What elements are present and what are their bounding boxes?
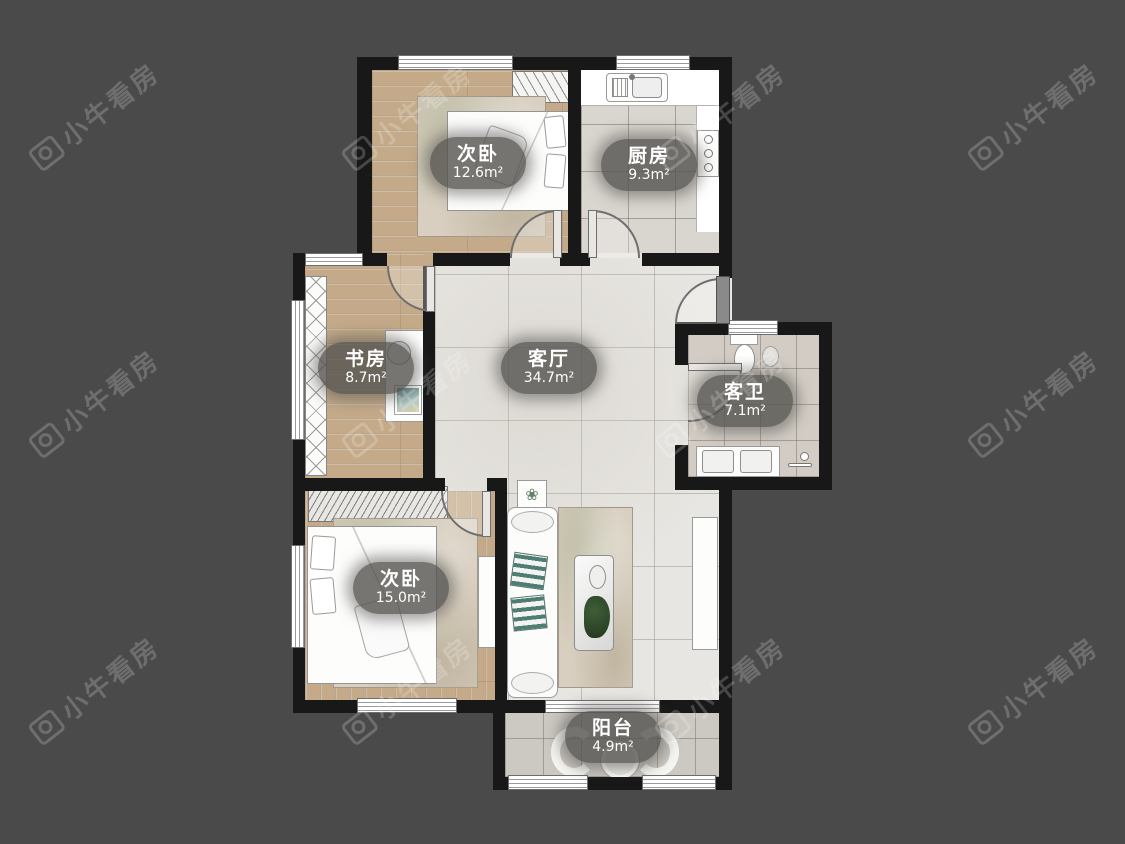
wall: [293, 700, 357, 713]
niu-logo-icon: [27, 707, 67, 746]
watermark: 小牛看房: [23, 627, 166, 750]
plant-box: ❀: [517, 480, 547, 508]
wall: [719, 57, 732, 278]
watermark: 小牛看房: [23, 340, 166, 463]
wall: [357, 57, 372, 266]
decor-bowl: [589, 565, 606, 589]
shower-head: [800, 452, 809, 461]
niu-logo-icon: [340, 707, 380, 746]
room-name: 客卫: [724, 382, 766, 403]
watermark-text: 小牛看房: [52, 340, 166, 441]
watermark: 小牛看房: [962, 627, 1105, 750]
sofa-cushion: [510, 594, 547, 631]
wall: [568, 57, 581, 266]
watermark-text: 小牛看房: [991, 627, 1105, 728]
room-area: 7.1m²: [724, 403, 766, 420]
pillow: [310, 535, 336, 571]
room-name: 厨房: [628, 146, 670, 167]
door-leaf: [688, 363, 742, 371]
sofa-cushion: [510, 552, 548, 590]
room-label-balcony: 阳台 4.9m²: [565, 711, 661, 763]
shower-bar: [788, 463, 812, 467]
room-label-bathroom: 客卫 7.1m²: [697, 375, 793, 427]
sofa-armrest: [511, 672, 554, 694]
room-name: 客厅: [528, 349, 570, 370]
room-area: 4.9m²: [592, 739, 634, 756]
tv-cabinet: [692, 517, 718, 650]
niu-logo-icon: [966, 133, 1006, 172]
burner: [704, 135, 713, 144]
room-name: 次卧: [457, 144, 499, 165]
window: [291, 545, 305, 648]
wall: [588, 777, 642, 790]
window: [357, 698, 457, 713]
door-leaf: [426, 266, 435, 312]
wall: [363, 253, 387, 266]
room-label-kitchen: 厨房 9.3m²: [601, 139, 697, 191]
door-leaf: [553, 210, 562, 258]
niu-logo-icon: [27, 133, 67, 172]
niu-logo-icon: [966, 707, 1006, 746]
burner: [704, 163, 713, 172]
wardrobe: [308, 486, 448, 522]
wall: [293, 478, 445, 491]
wash-basin: [702, 450, 734, 473]
wall: [642, 253, 732, 266]
room-name: 阳台: [592, 718, 634, 739]
watermark-text: 小牛看房: [52, 627, 166, 728]
floorplan-canvas: ❀: [0, 0, 1125, 844]
niu-logo-icon: [966, 420, 1006, 459]
wall: [719, 478, 732, 713]
room-area: 12.6m²: [453, 165, 503, 182]
wall: [433, 253, 510, 266]
window: [291, 300, 305, 440]
watermark: 小牛看房: [962, 53, 1105, 176]
room-area: 15.0m²: [376, 590, 426, 607]
window: [728, 320, 778, 335]
wall: [819, 322, 832, 490]
wash-basin: [740, 450, 772, 473]
room-label-bedroom-top: 次卧 12.6m²: [430, 137, 526, 189]
pillow: [543, 115, 566, 149]
window: [305, 253, 363, 266]
door-leaf: [588, 210, 597, 258]
window: [642, 775, 716, 790]
watermark: 小牛看房: [962, 340, 1105, 463]
window: [508, 775, 588, 790]
room-area: 9.3m²: [628, 167, 670, 184]
watermark-text: 小牛看房: [991, 340, 1105, 441]
room-name: 书房: [345, 349, 387, 370]
wall: [675, 322, 688, 365]
dish-rack: [612, 78, 628, 97]
faucet: [629, 74, 635, 80]
sofa-armrest: [511, 511, 554, 533]
wall: [716, 777, 732, 790]
sink-basin: [632, 77, 662, 98]
watermark: 小牛看房: [23, 53, 166, 176]
room-name: 次卧: [380, 569, 422, 590]
mirror-panel: [478, 556, 496, 648]
wall: [495, 478, 507, 713]
window: [616, 55, 690, 70]
wall: [560, 253, 590, 266]
window: [398, 55, 513, 70]
wall: [660, 700, 719, 713]
entry-door-leaf: [716, 276, 730, 324]
wall: [493, 777, 508, 790]
pillow: [309, 577, 336, 615]
wall: [675, 477, 832, 490]
wall: [505, 700, 545, 713]
watermark-text: 小牛看房: [52, 53, 166, 154]
watermark-text: 小牛看房: [991, 53, 1105, 154]
floor-drain: [762, 346, 779, 367]
burner: [704, 149, 713, 158]
pillow: [544, 153, 567, 189]
room-label-living: 客厅 34.7m²: [501, 342, 597, 394]
room-area: 34.7m²: [524, 370, 574, 387]
room-label-study: 书房 8.7m²: [318, 342, 414, 394]
door-leaf: [482, 491, 491, 537]
room-label-bedroom-bottom: 次卧 15.0m²: [353, 562, 449, 614]
niu-logo-icon: [27, 420, 67, 459]
room-area: 8.7m²: [345, 370, 387, 387]
